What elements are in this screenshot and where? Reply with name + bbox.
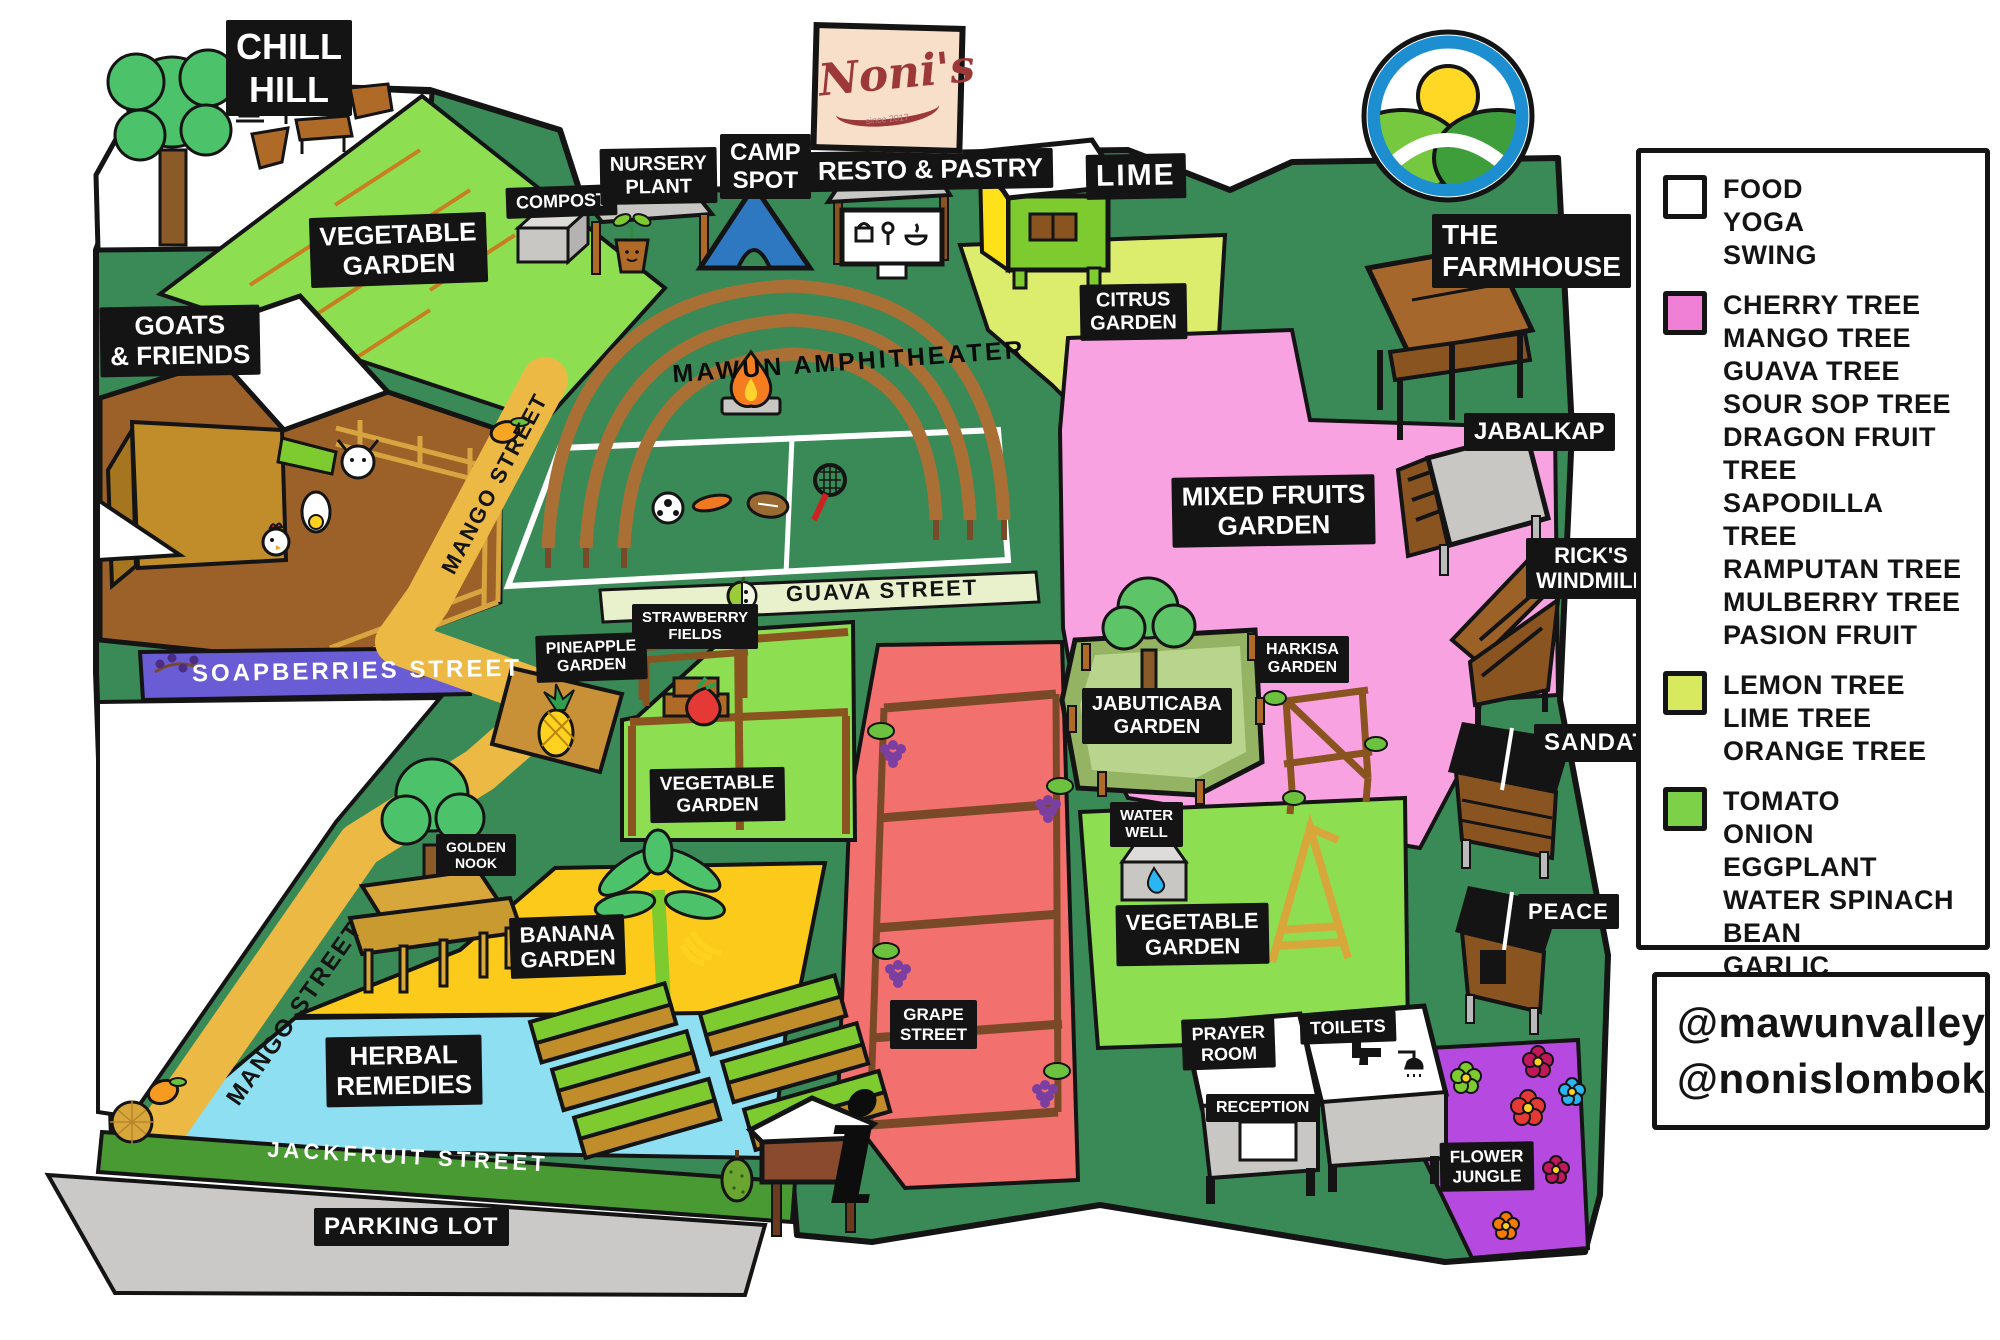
social-handle-mawunvalley: @mawunvalley [1677,995,1965,1051]
label-soapberries-street: SOAPBERRIES STREET [192,656,462,689]
soccer-ball-icon [653,493,683,523]
legend-swatch-white [1663,175,1707,219]
legend-swatch-lime [1663,671,1707,715]
label-resto-pastry: RESTO & PASTRY [808,148,1054,192]
legend-item: DRAGON FRUIT TREE [1723,421,1963,487]
label-toilets: TOILETS [1299,1010,1396,1044]
label-harkisa-garden: HARKISA GARDEN [1256,636,1349,683]
label-nursery-plant: NURSERY PLANT [600,147,718,205]
label-parking-lot: PARKING LOT [314,1208,509,1246]
legend-item: ONION [1723,818,1954,851]
legend-group-citrus-trees: LEMON TREE LIME TREE ORANGE TREE [1663,669,1963,768]
label-herbal-remedies: HERBAL REMEDIES [325,1035,482,1107]
label-jabalkap: JABALKAP [1464,413,1615,451]
info-icon: i [826,1076,883,1226]
legend-item: MULBERRY TREE [1723,586,1963,619]
resto-stand [828,181,950,278]
duck-icon [302,492,330,532]
legend-swatch-pink [1663,291,1707,335]
legend-item: FOOD [1723,173,1817,206]
legend-group-fruit-trees: CHERRY TREE MANGO TREE GUAVA TREE SOUR S… [1663,289,1963,652]
label-vegetable-garden-nw: VEGETABLE GARDEN [309,212,488,288]
label-peace: PEACE [1518,894,1619,929]
label-strawberry-fields: STRAWBERRY FIELDS [632,604,758,649]
legend-item: RAMPUTAN TREE [1723,553,1963,586]
nonis-sign: Noni's since 2017 [810,22,965,154]
mawun-valley-map: CHILL HILL VEGETABLE GARDEN GOATS & FRIE… [0,0,2000,1340]
label-prayer-room: PRAYER ROOM [1181,1016,1276,1071]
label-pineapple-garden: PINEAPPLE GARDEN [535,632,647,683]
water-well-icon [1122,845,1186,900]
label-chill-hill: CHILL HILL [226,20,352,116]
legend-item: EGGPLANT [1723,851,1954,884]
social-handles-panel: @mawunvalley @nonislombok [1652,972,1990,1130]
label-camp-spot: CAMP SPOT [720,134,811,199]
legend-item: GUAVA TREE [1723,355,1963,388]
label-citrus-garden: CITRUS GARDEN [1080,283,1188,341]
legend-swatch-green [1663,787,1707,831]
label-grape-street: GRAPE STREET [890,1000,977,1049]
legend-item: LIME TREE [1723,702,1927,735]
legend-group-activities: FOOD YOGA SWING [1663,173,1963,272]
goat-icon [338,440,378,478]
label-vegetable-garden-se: VEGETABLE GARDEN [1115,903,1269,966]
legend-item: WATER SPINACH [1723,884,1954,917]
legend-item: PASION FRUIT [1723,619,1963,652]
label-banana-garden: BANANA GARDEN [509,914,626,979]
label-water-well: WATER WELL [1110,802,1183,847]
label-golden-nook: GOLDEN NOOK [436,834,516,876]
legend-item: CHERRY TREE [1723,289,1963,322]
legend-item: YOGA [1723,206,1817,239]
label-reception: RECEPTION [1206,1094,1319,1122]
label-vegetable-garden-mid: VEGETABLE GARDEN [650,767,786,823]
legend-item: SWING [1723,239,1817,272]
label-flower-jungle: FLOWER JUNGLE [1440,1141,1534,1192]
label-jabuticaba-garden: JABUTICABA GARDEN [1082,688,1232,744]
legend-item: SAPODILLA TREE [1723,487,1963,553]
legend-panel: FOOD YOGA SWING CHERRY TREE MANGO TREE G… [1636,148,1990,950]
legend-item: MANGO TREE [1723,322,1963,355]
label-lime: LIME [1086,153,1186,199]
label-goats-friends: GOATS & FRIENDS [99,305,260,378]
legend-item: TOMATO [1723,785,1954,818]
legend-item: ORANGE TREE [1723,735,1927,768]
tree-icon [160,150,186,245]
legend-item: SOUR SOP TREE [1723,388,1963,421]
social-handle-nonislombok: @nonislombok [1677,1051,1965,1107]
legend-group-vegetables: TOMATO ONION EGGPLANT WATER SPINACH BEAN… [1663,785,1963,983]
label-mixed-fruits-garden: MIXED FRUITS GARDEN [1171,474,1376,547]
legend-item: BEAN [1723,917,1954,950]
legend-item: LEMON TREE [1723,669,1927,702]
label-farmhouse: THE FARMHOUSE [1432,214,1631,288]
